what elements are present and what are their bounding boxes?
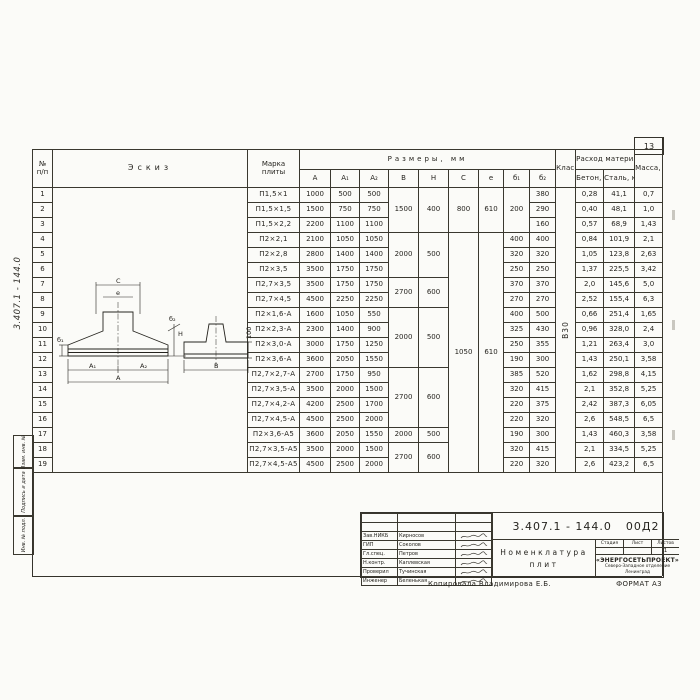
row-num: 1 <box>33 188 53 203</box>
table-cell: 1750 <box>331 368 360 383</box>
plate-mark: П2,7×4,5-А5 <box>248 458 300 473</box>
table-cell: 2700 <box>389 368 419 428</box>
table-cell: 2000 <box>360 413 389 428</box>
num-header-bottom: п/п <box>33 169 52 177</box>
table-cell: 2800 <box>300 248 331 263</box>
document-number: 3.407.1 - 144.0 00Д2 <box>493 513 679 540</box>
table-cell: 101,9 <box>604 233 635 248</box>
table-cell: 2300 <box>300 323 331 338</box>
table-cell: 2700 <box>300 368 331 383</box>
table-cell: 2000 <box>389 233 419 278</box>
stamp-inv-podl: Инв. № подл. <box>13 515 34 555</box>
table-cell: 3600 <box>300 428 331 443</box>
col-header-num: № п/п <box>33 150 53 188</box>
table-cell: 155,4 <box>604 293 635 308</box>
col-header-h: H <box>419 170 449 188</box>
sheet-value <box>624 548 651 554</box>
empty-cell <box>456 523 492 532</box>
table-cell: 123,8 <box>604 248 635 263</box>
table-cell: 2500 <box>331 458 360 473</box>
footer-note: Копировала Владимирова Е.Б. ФОРМАТ А3 <box>428 580 662 588</box>
plate-mark: П2×2,1 <box>248 233 300 248</box>
table-header: № п/п Эскиз Марка плиты Размеры, мм Клас… <box>33 150 663 188</box>
table-cell: 1700 <box>360 398 389 413</box>
table-cell: 1750 <box>331 338 360 353</box>
table-cell: 334,5 <box>604 443 635 458</box>
table-cell: 5,0 <box>635 278 663 293</box>
table-cell: 250 <box>504 338 530 353</box>
table-cell: 251,4 <box>604 308 635 323</box>
plate-mark: П2,7×3,5-А <box>248 383 300 398</box>
table-cell: 548,5 <box>604 413 635 428</box>
table-cell: 300 <box>530 353 556 368</box>
table-cell: 225,5 <box>604 263 635 278</box>
col-header-mass: Масса, т <box>635 150 663 188</box>
signature-row: Н.контр.Каплевская <box>362 559 492 568</box>
table-cell: 370 <box>504 278 530 293</box>
plate-mark: П2×3,6-А <box>248 353 300 368</box>
table-cell: 1400 <box>360 248 389 263</box>
table-cell: 385 <box>504 368 530 383</box>
table-cell: 250 <box>504 263 530 278</box>
table-cell: 800 <box>449 188 479 233</box>
col-header-c: C <box>449 170 479 188</box>
table-cell: 520 <box>530 368 556 383</box>
table-cell: 1500 <box>360 383 389 398</box>
table-cell: 220 <box>504 413 530 428</box>
table-cell: 250 <box>530 263 556 278</box>
scan-artifact <box>672 320 675 330</box>
col-header-class: Класс бетона <box>556 150 576 188</box>
person-role: Зав.НИКБ <box>362 532 398 541</box>
sheets-value: 1 <box>652 548 679 554</box>
table-cell: 3500 <box>300 443 331 458</box>
title-block-right: 3.407.1 - 144.0 00Д2 Номенклатура плит С… <box>492 513 679 577</box>
table-cell: 2,6 <box>576 413 604 428</box>
table-cell: 220 <box>504 458 530 473</box>
table-cell: 1600 <box>300 308 331 323</box>
row-num: 8 <box>33 293 53 308</box>
table-cell: 160 <box>530 218 556 233</box>
table-cell: 423,2 <box>604 458 635 473</box>
table-cell: 600 <box>419 278 449 308</box>
person-role: ГИП <box>362 541 398 550</box>
person-name: Тучинская <box>398 568 456 577</box>
table-cell: 2,1 <box>576 383 604 398</box>
person-role: Инженер <box>362 577 398 586</box>
person-role: Гл.спец. <box>362 550 398 559</box>
table-cell: 1750 <box>360 263 389 278</box>
row-num: 13 <box>33 368 53 383</box>
table-cell: 352,8 <box>604 383 635 398</box>
plate-mark: П1,5×1,5 <box>248 203 300 218</box>
plate-mark: П2×1,6-А <box>248 308 300 323</box>
sheet-cell: Лист <box>624 540 652 554</box>
plate-mark: П1,5×2,2 <box>248 218 300 233</box>
signature-row: ГИПСоколов <box>362 541 492 550</box>
margin-doc-number: 3.407.1 - 144.0 <box>13 245 27 341</box>
table-cell: 2,4 <box>635 323 663 338</box>
table-cell: 550 <box>360 308 389 323</box>
signature-scribble <box>456 541 492 550</box>
row-num: 19 <box>33 458 53 473</box>
table-cell: 1,21 <box>576 338 604 353</box>
table-cell: 1,0 <box>635 203 663 218</box>
table-cell: 200 <box>504 188 530 233</box>
table-cell: 1100 <box>331 218 360 233</box>
table-cell: 298,8 <box>604 368 635 383</box>
table-cell: 290 <box>530 203 556 218</box>
table-cell: 370 <box>530 278 556 293</box>
signature-scribble <box>456 568 492 577</box>
col-header-a: A <box>300 170 331 188</box>
person-name: Петров <box>398 550 456 559</box>
table-cell: 2500 <box>331 398 360 413</box>
table-cell: 1750 <box>360 278 389 293</box>
row-num: 12 <box>33 353 53 368</box>
person-role: Проверил <box>362 568 398 577</box>
col-header-steel: Сталь, кг <box>604 170 635 188</box>
stamp-label: Взам. инв. № <box>21 435 27 469</box>
table-cell: 1250 <box>360 338 389 353</box>
table-cell: 2,1 <box>635 233 663 248</box>
table-cell: 2000 <box>360 458 389 473</box>
table-cell: 3500 <box>300 263 331 278</box>
table-cell: 2000 <box>331 443 360 458</box>
table-cell: 320 <box>504 383 530 398</box>
sheets-label: Листов <box>652 540 679 548</box>
col-header-b2: б₂ <box>530 170 556 188</box>
table-cell: 600 <box>419 443 449 473</box>
col-header-materials: Расход материалов <box>576 150 635 170</box>
table-cell: 415 <box>530 443 556 458</box>
table-cell: 6,5 <box>635 458 663 473</box>
signature-row: Гл.спец.Петров <box>362 550 492 559</box>
table-cell: 1050 <box>360 233 389 248</box>
table-cell: 2000 <box>331 383 360 398</box>
table-cell: 610 <box>479 233 504 473</box>
table-cell: 500 <box>530 308 556 323</box>
table-cell: 500 <box>360 188 389 203</box>
table-cell: 1,05 <box>576 248 604 263</box>
row-num: 16 <box>33 413 53 428</box>
table-cell: 1550 <box>360 428 389 443</box>
table-cell: 400 <box>530 233 556 248</box>
table-cell: 2250 <box>331 293 360 308</box>
table-cell: 2,42 <box>576 398 604 413</box>
table-cell: 270 <box>504 293 530 308</box>
table-cell: 500 <box>419 233 449 278</box>
table-cell: 400 <box>504 308 530 323</box>
table-cell: 1,43 <box>576 428 604 443</box>
table-cell: 2200 <box>300 218 331 233</box>
table-cell: 320 <box>530 458 556 473</box>
stage-row: Стадия Лист Листов 1 <box>596 540 679 555</box>
stage-label: Стадия <box>596 540 623 548</box>
row-num: 7 <box>33 278 53 293</box>
table-cell: 2000 <box>389 308 419 368</box>
table-cell: 1750 <box>331 278 360 293</box>
doc-title-line2: плит <box>530 559 559 570</box>
table-cell: 0,96 <box>576 323 604 338</box>
table-cell: 5,25 <box>635 443 663 458</box>
table-cell: 1400 <box>331 248 360 263</box>
person-name: Кирносов <box>398 532 456 541</box>
table-cell: 6,3 <box>635 293 663 308</box>
table-cell: 5,25 <box>635 383 663 398</box>
table-cell: 4500 <box>300 413 331 428</box>
table-cell: 263,4 <box>604 338 635 353</box>
table-cell: 387,3 <box>604 398 635 413</box>
table-cell: 68,9 <box>604 218 635 233</box>
plate-mark: П2,7×4,5 <box>248 293 300 308</box>
table-cell: 3500 <box>300 278 331 293</box>
col-header-mark: Марка плиты <box>248 150 300 188</box>
empty-cell <box>362 523 398 532</box>
table-cell: 2000 <box>389 428 419 443</box>
table-cell: 2100 <box>300 233 331 248</box>
table-cell: 950 <box>360 368 389 383</box>
document-title: Номенклатура плит <box>493 540 596 577</box>
concrete-class: В30 <box>556 188 576 473</box>
table-cell: 400 <box>504 233 530 248</box>
signature-table: Зав.НИКБКирносовГИПСоколовГл.спец.Петров… <box>361 513 492 586</box>
table-cell: 2250 <box>360 293 389 308</box>
table-cell: 500 <box>419 308 449 368</box>
table-cell: 1,43 <box>576 353 604 368</box>
table-cell: 3,0 <box>635 338 663 353</box>
empty-cell <box>362 514 398 523</box>
stage-value <box>596 548 623 554</box>
table-cell: 3,58 <box>635 353 663 368</box>
table-cell: 1500 <box>300 203 331 218</box>
table-cell: 2700 <box>389 278 419 308</box>
table-cell: 270 <box>530 293 556 308</box>
empty-cell <box>456 514 492 523</box>
plates-table: № п/п Эскиз Марка плиты Размеры, мм Клас… <box>32 149 663 473</box>
table-cell: 610 <box>479 188 504 233</box>
table-cell: 900 <box>360 323 389 338</box>
table-cell: 2,63 <box>635 248 663 263</box>
table-cell: 750 <box>331 203 360 218</box>
signature-scribble <box>456 550 492 559</box>
row-num: 6 <box>33 263 53 278</box>
row-num: 9 <box>33 308 53 323</box>
table-body: 1П1,5×110005005001500400800610200380В300… <box>33 188 663 473</box>
organization-city: Ленинград <box>625 570 650 575</box>
signature-rows: Зав.НИКБКирносовГИПСоколовГл.спец.Петров… <box>362 514 492 586</box>
row-num: 11 <box>33 338 53 353</box>
row-num: 17 <box>33 428 53 443</box>
row-num: 18 <box>33 443 53 458</box>
col-header-b: B <box>389 170 419 188</box>
table-cell: 0,7 <box>635 188 663 203</box>
table-cell: 1400 <box>331 323 360 338</box>
table-cell: 2,6 <box>576 458 604 473</box>
table-cell: 380 <box>530 188 556 203</box>
person-name: Соколов <box>398 541 456 550</box>
plate-mark: П2,7×4,2-А <box>248 398 300 413</box>
table-cell: 0,57 <box>576 218 604 233</box>
doc-title-line1: Номенклатура <box>500 547 588 558</box>
table-cell: 320 <box>504 248 530 263</box>
table-cell: 6,5 <box>635 413 663 428</box>
table-cell: 320 <box>530 413 556 428</box>
table-cell: 48,1 <box>604 203 635 218</box>
table-cell: 500 <box>419 428 449 443</box>
table-cell: 320 <box>530 248 556 263</box>
col-header-b1: б₁ <box>504 170 530 188</box>
sketch-cell <box>53 188 248 473</box>
table-cell: 2500 <box>331 413 360 428</box>
table-cell: 300 <box>530 428 556 443</box>
table-cell: 1050 <box>331 308 360 323</box>
table-cell: 320 <box>504 443 530 458</box>
signature-row: Зав.НИКБКирносов <box>362 532 492 541</box>
table-cell: 1,43 <box>635 218 663 233</box>
stamp-label: Инв. № подл. <box>21 518 27 553</box>
table-cell: 2,0 <box>576 278 604 293</box>
sheets-cell: Листов 1 <box>652 540 679 554</box>
col-header-a1: A₁ <box>331 170 360 188</box>
table-cell: 1500 <box>389 188 419 233</box>
table-cell: 1050 <box>331 233 360 248</box>
table-cell: 2050 <box>331 353 360 368</box>
table-cell: 190 <box>504 428 530 443</box>
plate-mark: П2,7×2,7-А <box>248 368 300 383</box>
plate-mark: П2,7×4,5-А <box>248 413 300 428</box>
table-cell: 600 <box>419 368 449 428</box>
col-header-sketch: Эскиз <box>53 150 248 188</box>
doc-number-suffix: 00Д2 <box>626 520 660 533</box>
col-header-a2: A₂ <box>360 170 389 188</box>
plate-mark: П1,5×1 <box>248 188 300 203</box>
stage-cell: Стадия <box>596 540 624 554</box>
organization-box: «ЭНЕРГОСЕТЬПРОЕКТ» Северо-Западное отдел… <box>596 555 679 577</box>
table-cell: 430 <box>530 323 556 338</box>
concrete-class-value: В30 <box>561 321 569 339</box>
plate-mark: П2×3,6-А5 <box>248 428 300 443</box>
table-cell: 0,66 <box>576 308 604 323</box>
table-cell: 500 <box>331 188 360 203</box>
scanned-drawing-sheet: { "page": { "sheet_number": "13", "margi… <box>0 0 700 700</box>
plate-mark: П2,7×3,5-А5 <box>248 443 300 458</box>
table-cell: 3,42 <box>635 263 663 278</box>
row-num: 10 <box>33 323 53 338</box>
stamp-label: Подпись и дата <box>21 471 27 512</box>
table-cell: 1100 <box>360 218 389 233</box>
sheet-label: Лист <box>624 540 651 548</box>
row-num: 15 <box>33 398 53 413</box>
table-cell: 355 <box>530 338 556 353</box>
plate-mark: П2×2,3-А <box>248 323 300 338</box>
table-cell: 190 <box>504 353 530 368</box>
table-cell: 460,3 <box>604 428 635 443</box>
table-cell: 220 <box>504 398 530 413</box>
plate-mark: П2×3,5 <box>248 263 300 278</box>
table-cell: 2,52 <box>576 293 604 308</box>
table-cell: 415 <box>530 383 556 398</box>
row-num: 2 <box>33 203 53 218</box>
table-cell: 6,05 <box>635 398 663 413</box>
table-cell: 0,28 <box>576 188 604 203</box>
table-cell: 750 <box>360 203 389 218</box>
scan-artifact <box>672 430 675 440</box>
scan-artifact <box>672 210 675 220</box>
doc-number-main: 3.407.1 - 144.0 <box>512 520 611 533</box>
empty-cell <box>398 523 456 532</box>
row-num: 14 <box>33 383 53 398</box>
copied-by-note: Копировала Владимирова Е.Б. <box>428 580 551 588</box>
col-header-dims: Размеры, мм <box>300 150 556 170</box>
empty-cell <box>398 514 456 523</box>
row-num: 3 <box>33 218 53 233</box>
table-cell: 1550 <box>360 353 389 368</box>
table-cell: 3500 <box>300 383 331 398</box>
plate-mark: П2×3,0-А <box>248 338 300 353</box>
table-cell: 2050 <box>331 428 360 443</box>
stamp-podpis-data: Подпись и дата <box>13 467 34 517</box>
table-cell: 250,1 <box>604 353 635 368</box>
row-num: 4 <box>33 233 53 248</box>
signature-scribble <box>456 559 492 568</box>
col-header-concrete: Бетон, м³ <box>576 170 604 188</box>
table-cell: 400 <box>419 188 449 233</box>
table-cell: 2,1 <box>576 443 604 458</box>
table-cell: 325 <box>504 323 530 338</box>
table-cell: 145,6 <box>604 278 635 293</box>
table-cell: 4500 <box>300 458 331 473</box>
title-block: Зав.НИКБКирносовГИПСоколовГл.спец.Петров… <box>360 512 664 578</box>
signature-row: ПроверилТучинская <box>362 568 492 577</box>
table-cell: 4500 <box>300 293 331 308</box>
title-block-lower: Номенклатура плит Стадия Лист Листов 1 <box>493 540 679 577</box>
table-cell: 328,0 <box>604 323 635 338</box>
table-cell: 375 <box>530 398 556 413</box>
table-cell: 4,15 <box>635 368 663 383</box>
signature-scribble <box>456 532 492 541</box>
format-note: ФОРМАТ А3 <box>616 580 662 588</box>
col-header-e: e <box>479 170 504 188</box>
person-role: Н.контр. <box>362 559 398 568</box>
table-cell: 1,62 <box>576 368 604 383</box>
title-block-corner: Стадия Лист Листов 1 «ЭНЕРГОСЕТЬПРОЕКТ» … <box>596 540 679 577</box>
plate-mark: П2×2,8 <box>248 248 300 263</box>
table-cell: 1,37 <box>576 263 604 278</box>
person-name: Каплевская <box>398 559 456 568</box>
mark-header-2: плиты <box>248 169 299 177</box>
table-cell: 41,1 <box>604 188 635 203</box>
table-cell: 3600 <box>300 353 331 368</box>
table-cell: 3000 <box>300 338 331 353</box>
stamp-vzam-inv: Взам. инв. № <box>13 435 34 469</box>
table-cell: 0,40 <box>576 203 604 218</box>
table-cell: 1000 <box>300 188 331 203</box>
table-cell: 4200 <box>300 398 331 413</box>
table-cell: 1050 <box>449 233 479 473</box>
table-cell: 1,65 <box>635 308 663 323</box>
table-row: 1П1,5×110005005001500400800610200380В300… <box>33 188 663 203</box>
plate-mark: П2,7×3,5 <box>248 278 300 293</box>
table-cell: 1500 <box>360 443 389 458</box>
table-cell: 0,84 <box>576 233 604 248</box>
table-cell: 3,58 <box>635 428 663 443</box>
table-cell: 1750 <box>331 263 360 278</box>
row-num: 5 <box>33 248 53 263</box>
table-cell: 2700 <box>389 443 419 473</box>
